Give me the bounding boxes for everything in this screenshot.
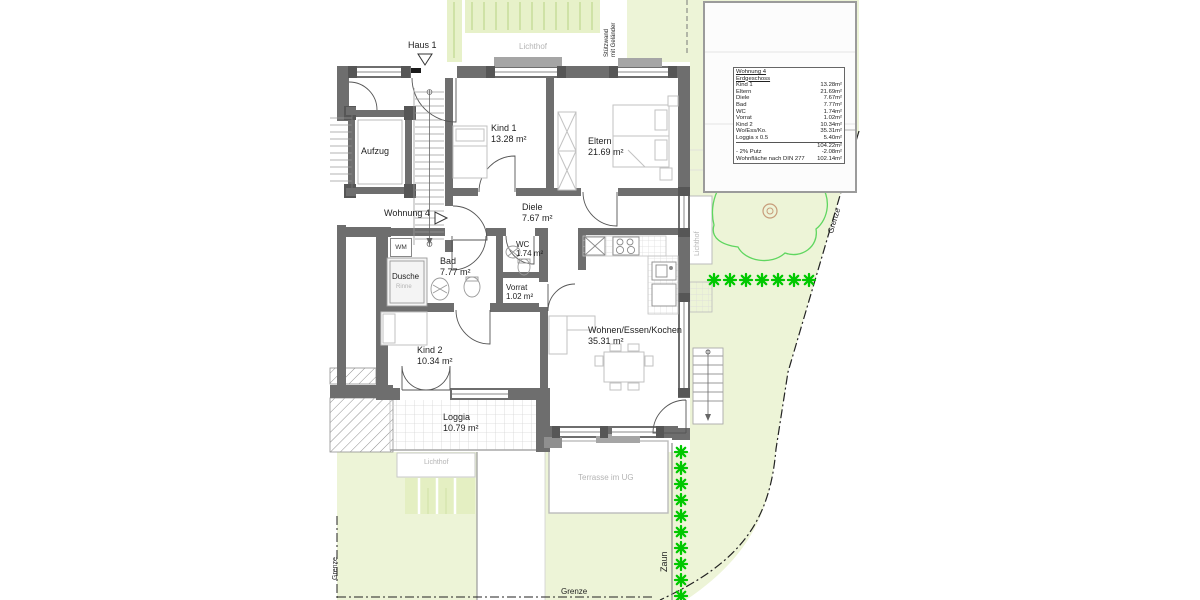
room-label-vorrat: Vorrat 1.02 m²: [506, 283, 533, 301]
label-lichthof-right: Lichthof: [694, 231, 702, 256]
legend-row: Eltern21.69m²: [736, 89, 842, 96]
kitchen: [583, 236, 678, 314]
label-grenze-left: Grenze: [332, 557, 340, 580]
legend-row: Loggia x 0.55.40m²: [736, 135, 842, 143]
legend-row: Vorrat1.02m²: [736, 115, 842, 122]
eltern-door: [583, 192, 617, 226]
label-dusche: Dusche: [392, 272, 419, 281]
washing-machine-box: WM: [390, 238, 412, 257]
cooktop-icon: [613, 237, 639, 255]
dining-table: [595, 344, 653, 390]
legend-row-putz: - 2% Putz-2.08m²: [736, 149, 842, 156]
room-label-loggia: Loggia 10.79 m²: [443, 412, 479, 433]
room-label-kind2: Kind 2 10.34 m²: [417, 345, 453, 366]
floor-plan-drawing: [0, 0, 1200, 600]
legend-row: Kind 113.28m²: [736, 82, 842, 89]
stairs-main: [414, 88, 444, 246]
room-label-eltern: Eltern 21.69 m²: [588, 136, 624, 157]
label-grenze-bottom: Grenze: [561, 587, 587, 596]
room-label-kind1: Kind 1 13.28 m²: [491, 123, 527, 144]
label-rinne: Rinne: [396, 284, 412, 291]
label-lichthof-top: Lichthof: [519, 42, 547, 51]
stairs-exterior: [693, 348, 723, 424]
legend-title: Wohnung 4: [736, 69, 842, 76]
legend-row: WC1.74m²: [736, 109, 842, 116]
room-label-bad: Bad 7.77 m²: [440, 256, 471, 277]
legend-row: Diele7.67m²: [736, 95, 842, 102]
area-legend-table: Wohnung 4 Erdgeschoss Kind 113.28m² Elte…: [733, 67, 845, 164]
label-terrasse: Terrasse im UG: [578, 473, 634, 482]
label-lichthof-bottom: Lichthof: [424, 459, 449, 467]
bed-kind2: [381, 312, 427, 345]
bed-kind1: [453, 126, 487, 178]
legend-subtitle: Erdgeschoss: [736, 76, 842, 83]
legend-row: Wo/Ess/Ko.35.31m²: [736, 128, 842, 135]
driveway: [477, 452, 545, 600]
kind2-door: [456, 310, 490, 344]
legend-sum: 104.22m²: [736, 143, 842, 150]
label-stuetzwand: Stützwand mit Geländer: [604, 23, 618, 57]
room-label-wohnen: Wohnen/Essen/Kochen 35.31 m²: [588, 325, 682, 346]
room-label-aufzug: Aufzug: [361, 146, 389, 157]
label-haus1: Haus 1: [408, 40, 437, 50]
legend-row-total: Wohnfläche nach DIN 277102.14m²: [736, 156, 842, 163]
label-zaun: Zaun: [659, 551, 669, 572]
legend-row: Bad7.77m²: [736, 102, 842, 109]
loggia-door-left: [402, 366, 426, 390]
hall-door: [349, 82, 377, 110]
legend-row: Kind 210.34m²: [736, 122, 842, 129]
wardrobe-eltern: [558, 112, 576, 190]
room-label-wc: WC 1.74 m²: [516, 240, 543, 258]
markers: [418, 54, 447, 224]
shower-tray: [387, 258, 427, 306]
room-label-diele: Diele 7.67 m²: [522, 202, 553, 223]
loggia-door-right: [426, 366, 450, 390]
floor-plan-page: Haus 1 Lichthof Stützwand mit Geländer W…: [0, 0, 1200, 600]
sink-icon: [652, 262, 676, 306]
haus1-triangle-marker: [418, 54, 432, 65]
terrace-door-opening: [678, 398, 690, 428]
label-wohnung4: Wohnung 4: [384, 208, 430, 218]
vorrat-door: [548, 284, 575, 311]
